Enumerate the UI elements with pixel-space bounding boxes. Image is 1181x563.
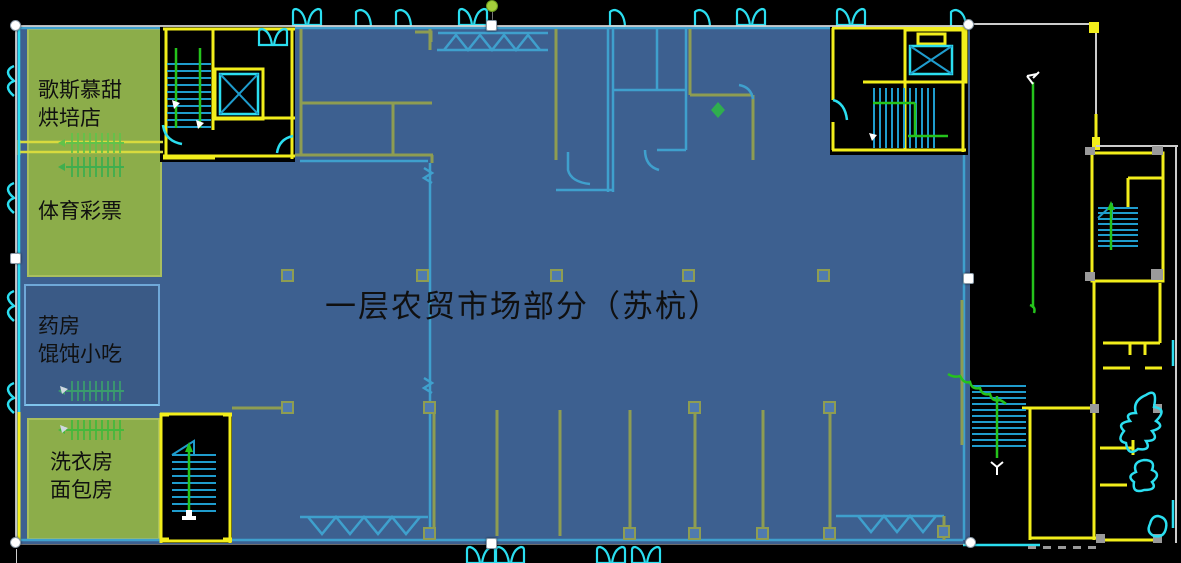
resize-corner-handle-top-left[interactable]: [10, 20, 21, 31]
resize-mid-handle-top[interactable]: [486, 20, 497, 31]
label-laundry-bread[interactable]: 洗衣房 面包房: [50, 448, 113, 504]
resize-corner-handle-bottom-right[interactable]: [965, 537, 976, 548]
right-wing: [970, 22, 1178, 549]
stair-room-bottom-left: [160, 413, 232, 543]
adorner-stem-bottom-left: [16, 549, 18, 563]
label-pharmacy-wonton[interactable]: 药房 馄饨小吃: [38, 312, 122, 368]
stairwell-top-right: [830, 26, 968, 155]
escalator-bottom-right: [948, 374, 1026, 475]
door-symbols-top-edge: [293, 9, 966, 26]
escalator-combs-left: [19, 133, 163, 440]
door-symbols-bottom-edge: [467, 545, 1040, 563]
label-laundry-line1: 洗衣房: [50, 448, 113, 476]
slide-canvas: 歌斯慕甜 烘培店 体育彩票 药房 馄饨小吃 洗衣房 面包房 一层农贸市场部分（苏…: [0, 0, 1181, 563]
label-bakery[interactable]: 歌斯慕甜 烘培店: [38, 76, 122, 132]
label-laundry-line2: 面包房: [50, 476, 113, 504]
resize-corner-handle-top-right[interactable]: [963, 19, 974, 30]
resize-corner-handle-bottom-left[interactable]: [10, 537, 21, 548]
rotate-handle-icon[interactable]: [486, 0, 498, 12]
resize-mid-handle-right[interactable]: [963, 273, 974, 284]
label-lottery-line1: 体育彩票: [38, 197, 122, 225]
left-exterior-wall: [8, 28, 19, 540]
label-bakery-line1: 歌斯慕甜: [38, 76, 122, 104]
label-bakery-line2: 烘培店: [38, 104, 122, 132]
label-pharmacy-line1: 药房: [38, 312, 122, 340]
label-sports-lottery[interactable]: 体育彩票: [38, 197, 122, 225]
label-pharmacy-line2: 馄饨小吃: [38, 340, 122, 368]
resize-mid-handle-bottom[interactable]: [486, 538, 497, 549]
resize-mid-handle-left[interactable]: [10, 253, 21, 264]
exit-path-arrow: [1027, 72, 1039, 313]
selection-edge-left: [15, 26, 17, 544]
page-title[interactable]: 一层农贸市场部分（苏杭）: [325, 281, 721, 326]
stairwell-top-left: [160, 26, 295, 162]
